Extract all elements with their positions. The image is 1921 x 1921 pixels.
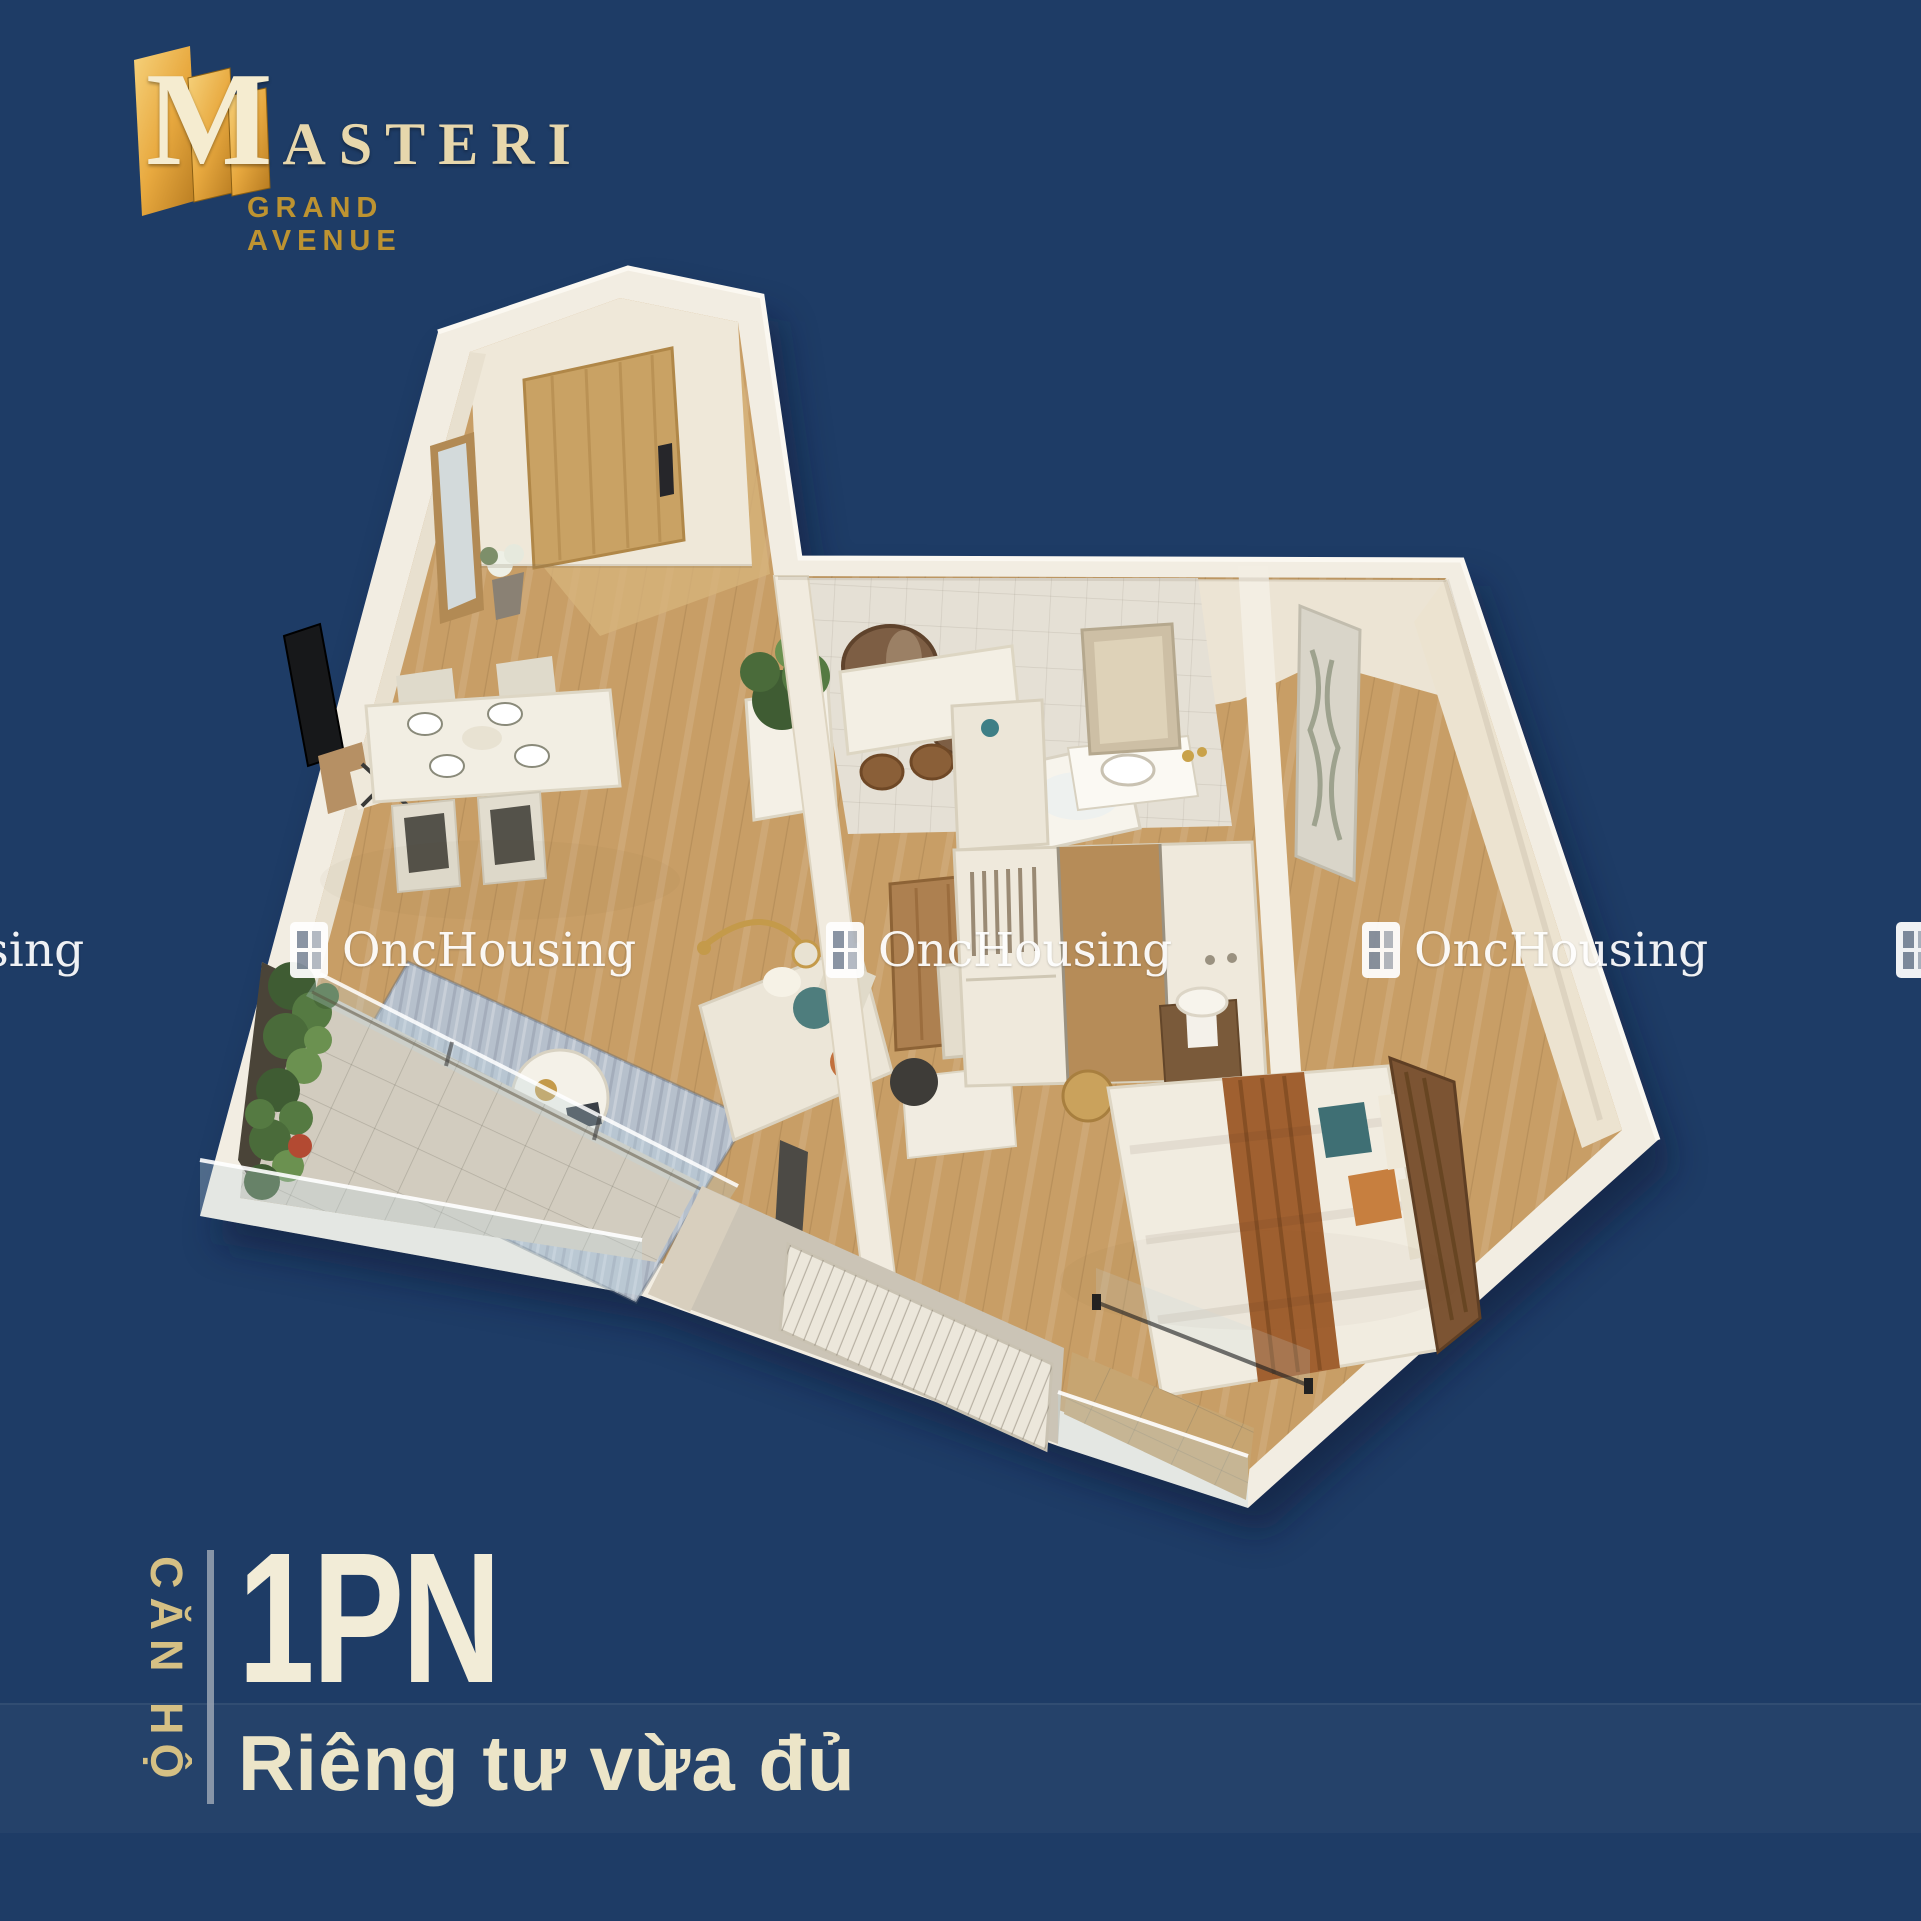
teal-pillow (1318, 1102, 1372, 1158)
dresser (952, 700, 1048, 850)
window-grid-icon (290, 922, 328, 978)
sink (1102, 755, 1154, 785)
basket (861, 755, 903, 789)
basket (911, 745, 953, 779)
tv-screen (284, 624, 344, 766)
caption-divider (207, 1550, 214, 1804)
art-panel (1296, 606, 1360, 880)
orange-pillow (1348, 1168, 1402, 1226)
brand-name: M ASTERI (146, 52, 584, 186)
watermark: OncHousing (1362, 922, 1708, 978)
watermark: OncHousing (0, 922, 84, 978)
lamp-shade (1177, 988, 1227, 1016)
window-grid-icon (826, 922, 864, 978)
watermark: OncHousing (826, 922, 1172, 978)
brand-initial: M (146, 52, 272, 186)
watermark: OncHousing (1896, 922, 1921, 978)
stool (1063, 1071, 1113, 1121)
unit-subtitle: Riêng tư vừa đủ (238, 1724, 856, 1802)
brand-tagline: GRAND AVENUE (247, 192, 402, 258)
watermark-text: OncHousing (342, 923, 636, 978)
window-grid-icon (1896, 922, 1921, 978)
door-handle (658, 443, 674, 497)
desk-chair (890, 1058, 938, 1106)
caption-main: 1PN Riêng tư vừa đủ (238, 1526, 856, 1802)
poster: { "brand": { "initial": "M", "rest": "AS… (0, 0, 1921, 1921)
flower-pot (492, 572, 524, 620)
watermark-text: OncHousing (0, 923, 84, 978)
watermark-text: OncHousing (1414, 923, 1708, 978)
brand-name-rest: ASTERI (282, 114, 583, 174)
watermark: OncHousing (290, 922, 636, 978)
watermark-text: OncHousing (878, 923, 1172, 978)
window-grid-icon (1362, 922, 1400, 978)
unit-type-label: CĂN HỘ (140, 1556, 192, 1816)
unit-headline: 1PN (238, 1526, 695, 1712)
